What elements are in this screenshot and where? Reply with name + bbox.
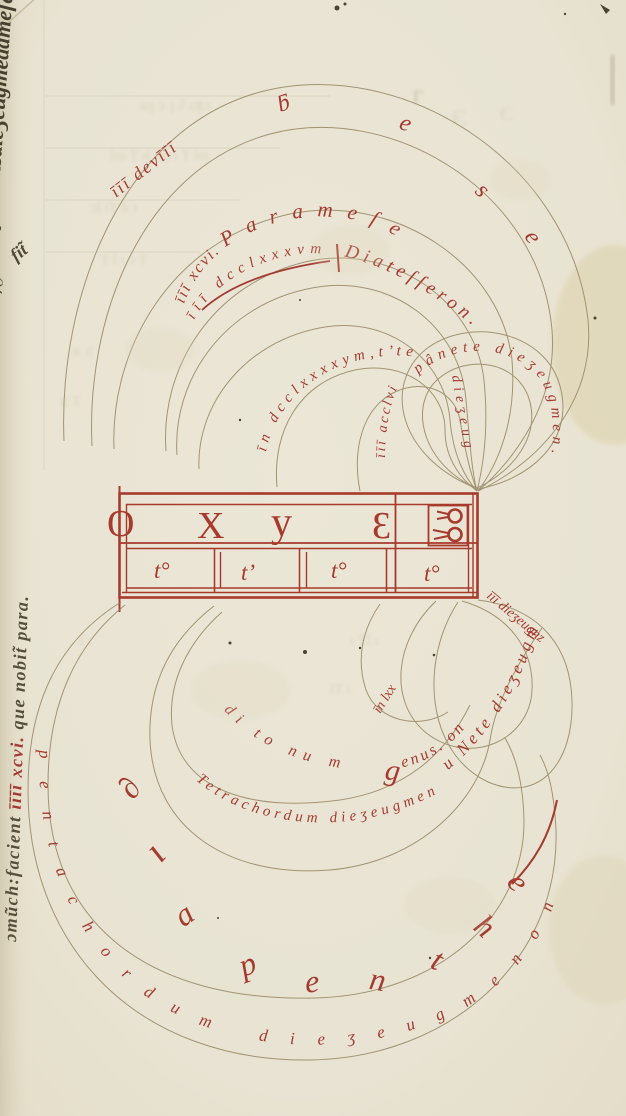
svg-text:ɔl ɩT lɩ ɩ: ɔl ɩT lɩ ɩ bbox=[90, 200, 137, 216]
svg-text:t°: t° bbox=[154, 558, 170, 583]
svg-text:t°: t° bbox=[424, 561, 440, 586]
svg-text:X: X bbox=[197, 505, 224, 547]
svg-text:O: O bbox=[107, 503, 134, 545]
svg-text:Є: Є bbox=[452, 105, 467, 130]
svg-text:ɩl T: ɩl T bbox=[60, 394, 81, 410]
svg-text:ȝ: ȝ bbox=[196, 94, 203, 115]
svg-text:Ɛ: Ɛ bbox=[372, 505, 391, 547]
svg-text:t’: t’ bbox=[241, 560, 255, 585]
svg-text:T l ɩ ɔ T: T l ɩ ɔ T bbox=[100, 252, 148, 268]
svg-text:Є: Є bbox=[500, 103, 513, 125]
svg-text:lT ɩ: lT ɩ bbox=[330, 682, 351, 698]
svg-text:ɔɩ ɩl: ɔɩ ɩl bbox=[70, 344, 93, 360]
svg-text:y: y bbox=[271, 500, 292, 546]
svg-text:t°: t° bbox=[331, 558, 347, 583]
svg-text:Γ: Γ bbox=[413, 87, 423, 107]
